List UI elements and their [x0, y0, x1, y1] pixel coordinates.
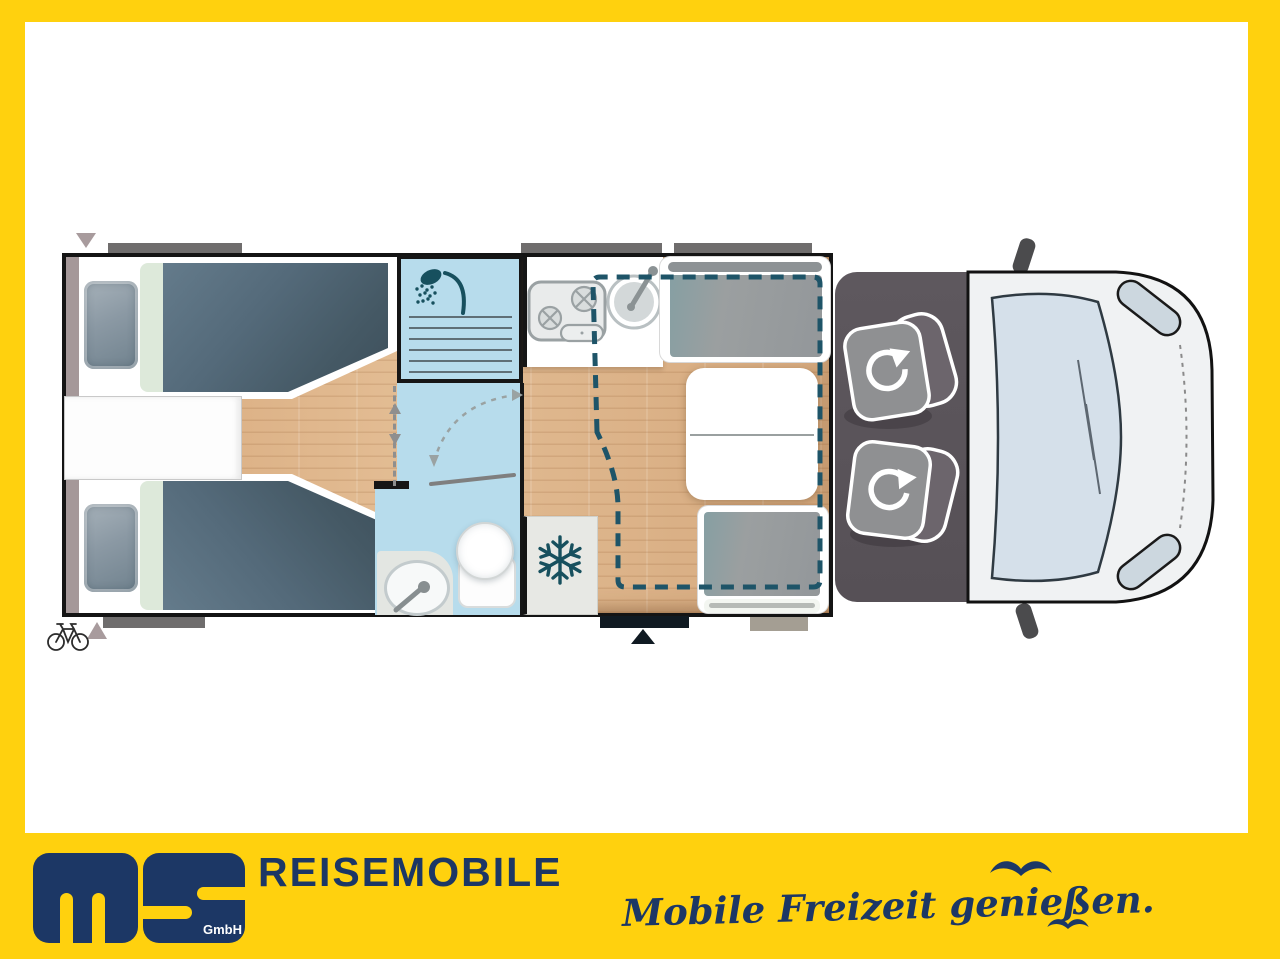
seagull-icon: [1046, 913, 1090, 933]
windshield: [992, 294, 1121, 581]
pillow: [84, 281, 138, 369]
frame-top: [0, 0, 1280, 22]
wordmark: REISEMOBILE: [258, 849, 562, 896]
rear-wall-shelf: [66, 478, 79, 613]
bedside-chest: [64, 396, 242, 480]
window-marker: [103, 616, 205, 628]
frame-right: [1248, 0, 1280, 833]
pillow: [84, 504, 138, 592]
marker-triangle-icon: [87, 622, 107, 639]
marker-triangle-icon: [76, 233, 96, 248]
shower-cubicle: [397, 255, 523, 383]
snowflake-icon: [533, 533, 587, 587]
faucet-icon: [388, 578, 436, 618]
entrance-door: [600, 616, 689, 628]
bicycle-icon: [46, 616, 90, 652]
frame-left: [0, 0, 25, 833]
entrance-arrow-icon: [631, 629, 655, 644]
shower-icon: [411, 263, 475, 319]
vehicle-front: [958, 228, 1220, 652]
drop-down-bed-outline: [585, 270, 830, 595]
swivel-seat-rotation-icon: [846, 440, 933, 541]
slide-arrow-icon: [389, 434, 401, 445]
bench-step-line: [709, 603, 815, 608]
slide-arrow-icon: [389, 403, 401, 414]
bed-blanket-edge: [140, 263, 163, 392]
rear-wall-shelf: [66, 257, 79, 396]
side-mirror-icon: [1014, 601, 1040, 640]
side-mirror-icon: [1011, 236, 1037, 275]
page: GmbH REISEMOBILE Mobile Freizeit genieße…: [0, 0, 1280, 959]
logo-gmbh-label: GmbH: [203, 922, 242, 937]
entry-step: [750, 617, 808, 631]
seagull-icon: [988, 852, 1054, 882]
logo-m-block: [33, 853, 138, 943]
bed-blanket-edge: [140, 481, 163, 610]
bathroom-wall: [374, 481, 409, 489]
toilet: [456, 522, 514, 580]
door-swing-icon: [420, 385, 530, 495]
swivel-seat-rotation-icon: [842, 320, 931, 423]
